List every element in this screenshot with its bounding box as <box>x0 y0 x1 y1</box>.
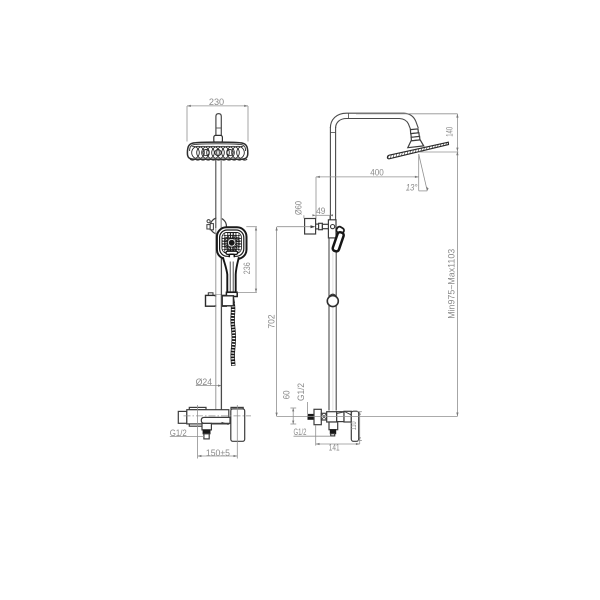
svg-text:Min975~Max1103: Min975~Max1103 <box>447 249 457 319</box>
svg-text:60: 60 <box>282 390 292 399</box>
svg-text:140: 140 <box>445 127 455 137</box>
svg-text:G1/2: G1/2 <box>296 383 306 401</box>
svg-text:49: 49 <box>316 206 325 216</box>
svg-text:400: 400 <box>370 167 384 177</box>
svg-text:13°: 13° <box>406 182 418 192</box>
svg-text:141: 141 <box>329 442 340 452</box>
svg-text:110: 110 <box>349 421 358 430</box>
svg-text:Ø60: Ø60 <box>293 201 303 215</box>
svg-text:G1/2: G1/2 <box>294 427 307 437</box>
svg-text:236: 236 <box>242 262 252 274</box>
svg-text:230: 230 <box>209 97 224 107</box>
svg-text:150±5: 150±5 <box>206 448 230 458</box>
svg-text:702: 702 <box>266 315 276 329</box>
